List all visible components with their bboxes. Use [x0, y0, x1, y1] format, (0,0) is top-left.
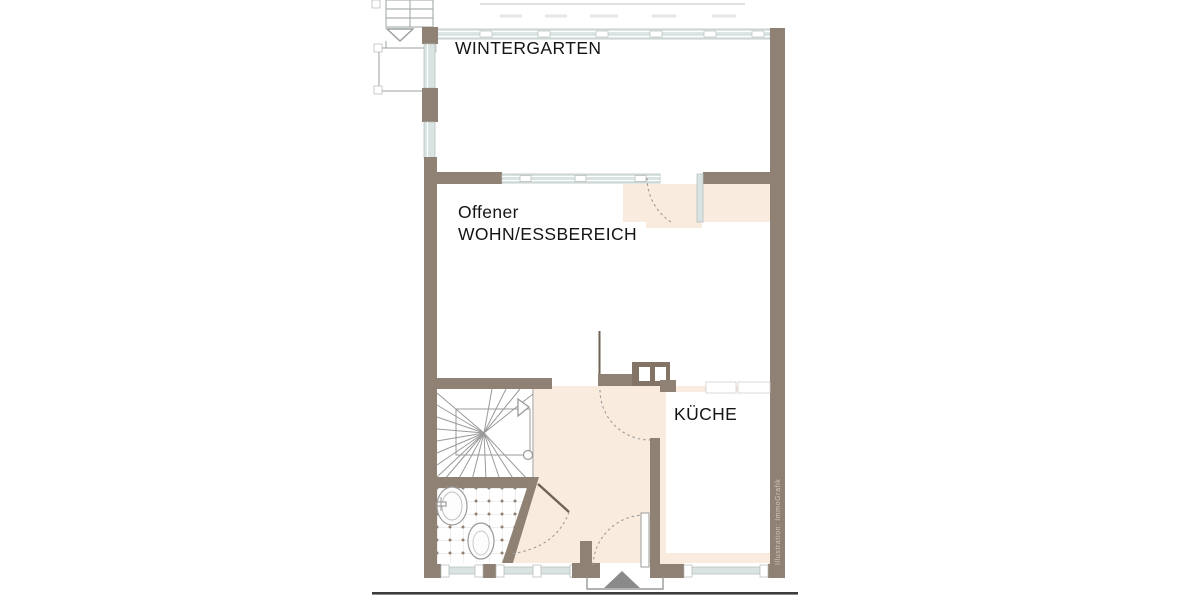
- wintergarten-left-windows: [422, 44, 438, 158]
- left-wall: [424, 157, 437, 577]
- living-label-line1: Offener: [458, 202, 519, 222]
- sliding-window: [502, 174, 660, 183]
- kitchen-label: KÜCHE: [674, 404, 737, 424]
- wintergarten-label: WINTERGARTEN: [455, 38, 601, 58]
- stair-top-wall: [437, 378, 552, 389]
- wintergarten-living-wall: [424, 172, 770, 184]
- kitchen-wall: [650, 438, 660, 564]
- stair-down-arrow: [387, 29, 413, 41]
- ground-line: [372, 592, 798, 595]
- living-floor-tint: [623, 184, 770, 228]
- floor-plan-canvas: WINTERGARTEN Offener WOHN/ESSBEREICH: [0, 0, 1200, 600]
- wall-post: [422, 27, 438, 44]
- kitchen-window: [684, 563, 768, 579]
- kitchen-counters: [706, 382, 770, 393]
- window-b: [496, 563, 578, 579]
- watermark: Illustration: ImmoGrafik: [775, 479, 782, 565]
- roof-line: [480, 4, 745, 16]
- toilet: [468, 523, 494, 559]
- newel-post: [524, 451, 533, 460]
- sink: [437, 487, 467, 525]
- chimney: [598, 362, 670, 387]
- room-wintergarten: WINTERGARTEN: [422, 27, 770, 158]
- floor-plan: WINTERGARTEN Offener WOHN/ESSBEREICH: [0, 0, 1200, 600]
- bathroom-top-wall: [437, 477, 536, 488]
- living-label-line2: WOHN/ESSBEREICH: [458, 224, 637, 244]
- window-a: [441, 563, 483, 579]
- room-living: Offener WOHN/ESSBEREICH: [458, 202, 637, 244]
- glass-partition: [697, 174, 703, 222]
